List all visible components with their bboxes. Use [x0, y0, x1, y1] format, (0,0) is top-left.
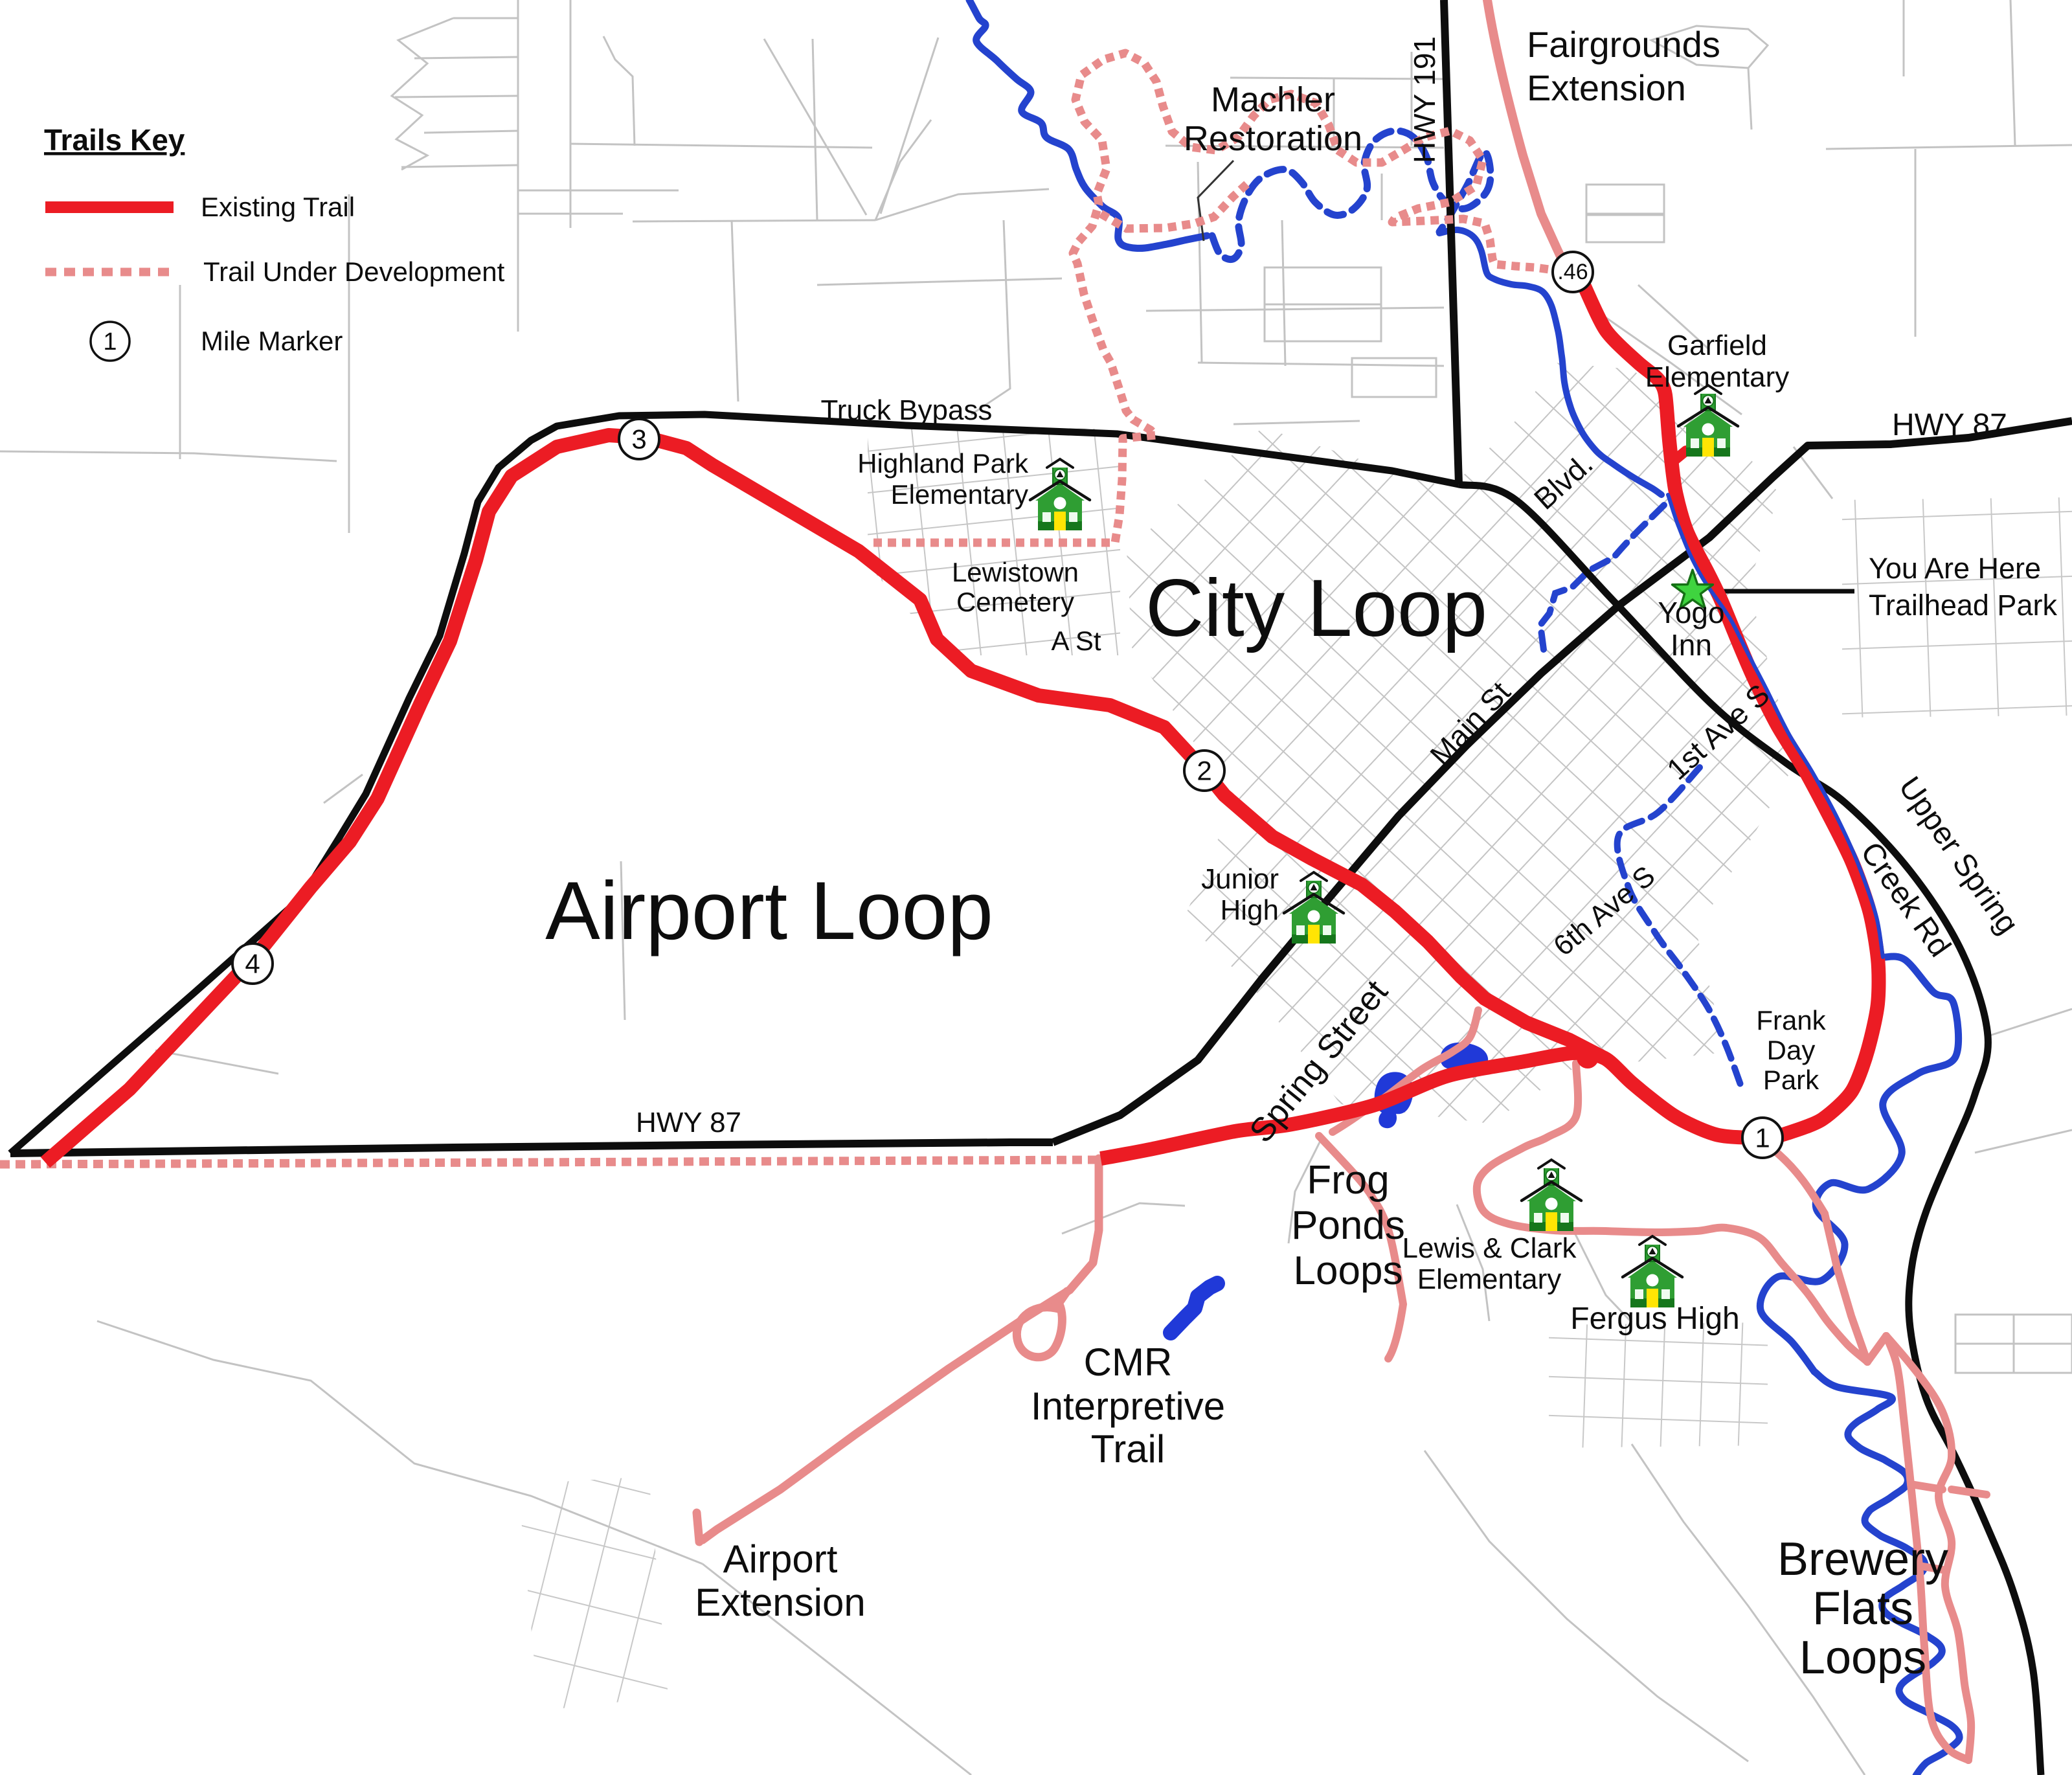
svg-text:You Are Here: You Are Here	[1869, 552, 2041, 585]
svg-text:Fergus High: Fergus High	[1570, 1302, 1739, 1336]
svg-text:HWY 87: HWY 87	[636, 1107, 741, 1138]
svg-text:1: 1	[103, 328, 117, 356]
svg-text:Loops: Loops	[1294, 1249, 1403, 1293]
svg-text:High: High	[1221, 894, 1279, 926]
svg-text:A St: A St	[1051, 626, 1101, 656]
svg-text:2: 2	[1197, 756, 1211, 786]
svg-text:Ponds: Ponds	[1291, 1203, 1405, 1248]
svg-text:Trails Key: Trails Key	[44, 123, 185, 157]
svg-text:Elementary: Elementary	[1645, 361, 1790, 393]
svg-text:Airport: Airport	[723, 1537, 838, 1581]
svg-text:Garfield: Garfield	[1667, 330, 1767, 361]
svg-text:Frank: Frank	[1756, 1005, 1826, 1035]
svg-text:Existing Trail: Existing Trail	[201, 192, 355, 222]
svg-text:Mile Marker: Mile Marker	[201, 326, 343, 356]
svg-text:4: 4	[245, 949, 260, 979]
svg-text:Extension: Extension	[695, 1581, 866, 1624]
svg-text:HWY 87: HWY 87	[1892, 408, 2007, 442]
svg-text:Day: Day	[1767, 1035, 1816, 1065]
svg-text:Truck Bypass: Truck Bypass	[821, 394, 993, 426]
svg-text:Machler: Machler	[1211, 80, 1335, 119]
svg-text:Cemetery: Cemetery	[956, 587, 1074, 617]
svg-text:Interpretive: Interpretive	[1031, 1385, 1225, 1428]
svg-text:Airport Loop: Airport Loop	[545, 865, 993, 956]
svg-text:1: 1	[1755, 1123, 1770, 1153]
svg-text:Loops: Loops	[1799, 1632, 1926, 1684]
svg-text:HWY 191: HWY 191	[1408, 36, 1441, 163]
svg-text:Inn: Inn	[1671, 628, 1712, 662]
svg-text:Trailhead Park: Trailhead Park	[1869, 589, 2057, 622]
svg-text:Yogo: Yogo	[1658, 596, 1724, 629]
svg-text:.46: .46	[1557, 260, 1588, 284]
svg-text:Lewistown: Lewistown	[952, 557, 1079, 587]
svg-text:Extension: Extension	[1527, 67, 1686, 108]
svg-text:CMR: CMR	[1084, 1340, 1173, 1384]
svg-text:Frog: Frog	[1307, 1158, 1389, 1203]
svg-text:City Loop: City Loop	[1145, 563, 1487, 653]
svg-text:Fairgrounds: Fairgrounds	[1527, 24, 1720, 65]
svg-text:Restoration: Restoration	[1184, 119, 1362, 158]
svg-text:Lewis & Clark: Lewis & Clark	[1402, 1232, 1577, 1264]
svg-text:Park: Park	[1763, 1065, 1819, 1095]
svg-text:Brewery: Brewery	[1777, 1533, 1948, 1585]
svg-text:Elementary: Elementary	[1417, 1263, 1562, 1295]
svg-text:Highland Park: Highland Park	[857, 448, 1029, 479]
svg-text:Flats: Flats	[1812, 1583, 1913, 1634]
svg-text:Trail Under Development: Trail Under Development	[203, 256, 505, 287]
svg-text:3: 3	[631, 424, 646, 455]
svg-text:Junior: Junior	[1201, 863, 1279, 895]
svg-text:Trail: Trail	[1091, 1427, 1165, 1471]
svg-text:Elementary: Elementary	[891, 479, 1028, 510]
